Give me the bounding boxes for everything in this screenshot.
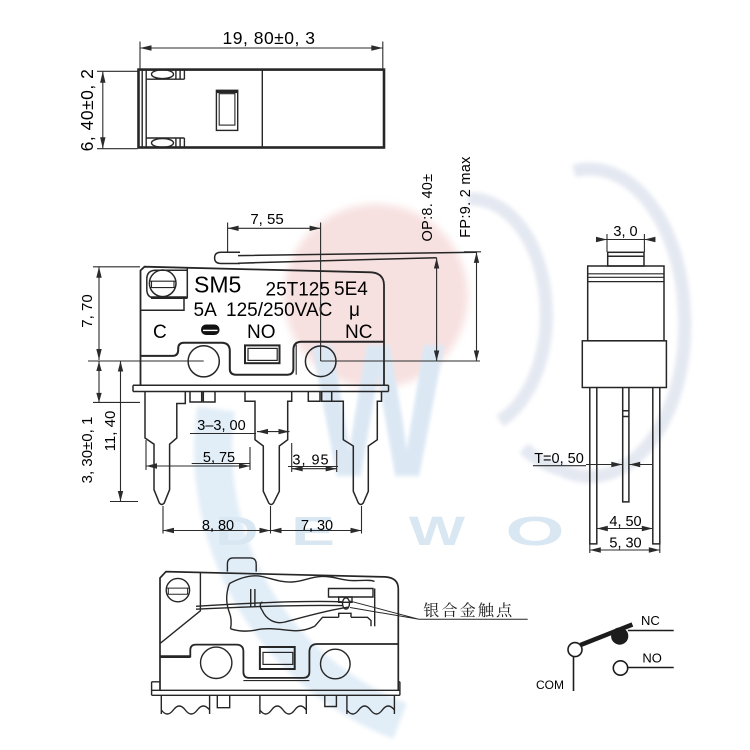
svg-text:19, 80±0, 3: 19, 80±0, 3 — [223, 28, 316, 48]
svg-text:3, 0: 3, 0 — [613, 224, 637, 240]
svg-text:7, 70: 7, 70 — [79, 294, 96, 327]
svg-text:7, 30: 7, 30 — [301, 518, 333, 534]
svg-text:8, 80: 8, 80 — [202, 518, 234, 534]
svg-text:T=0, 50: T=0, 50 — [534, 451, 584, 467]
svg-text:O: O — [506, 508, 565, 554]
svg-text:125/250VAC: 125/250VAC — [226, 300, 332, 321]
svg-text:3, 30±0, 1: 3, 30±0, 1 — [79, 417, 96, 484]
svg-text:OP:8. 40±: OP:8. 40± — [420, 174, 436, 242]
svg-text:C: C — [153, 322, 167, 343]
svg-text:5E4: 5E4 — [334, 279, 368, 300]
svg-text:COM: COM — [536, 678, 564, 692]
svg-text:W: W — [312, 305, 445, 516]
svg-text:6, 40±0, 2: 6, 40±0, 2 — [77, 69, 97, 152]
svg-text:NO: NO — [642, 651, 662, 666]
svg-text:NO: NO — [247, 322, 276, 343]
svg-text:7, 55: 7, 55 — [250, 211, 283, 228]
svg-text:5A: 5A — [194, 300, 218, 321]
svg-text:3–3, 00: 3–3, 00 — [197, 418, 245, 434]
svg-text:11, 40: 11, 40 — [102, 411, 119, 452]
svg-text:4, 50: 4, 50 — [609, 514, 641, 530]
svg-text:3, 95: 3, 95 — [292, 453, 329, 469]
svg-text:FP:9. 2 max: FP:9. 2 max — [458, 156, 474, 238]
svg-text:NC: NC — [641, 613, 660, 628]
svg-text:W: W — [409, 508, 466, 554]
svg-text:5, 75: 5, 75 — [203, 450, 235, 466]
svg-text:5, 30: 5, 30 — [609, 536, 641, 552]
svg-text:μ: μ — [349, 300, 360, 321]
svg-text:SM5: SM5 — [194, 272, 241, 298]
svg-text:NC: NC — [345, 322, 372, 343]
